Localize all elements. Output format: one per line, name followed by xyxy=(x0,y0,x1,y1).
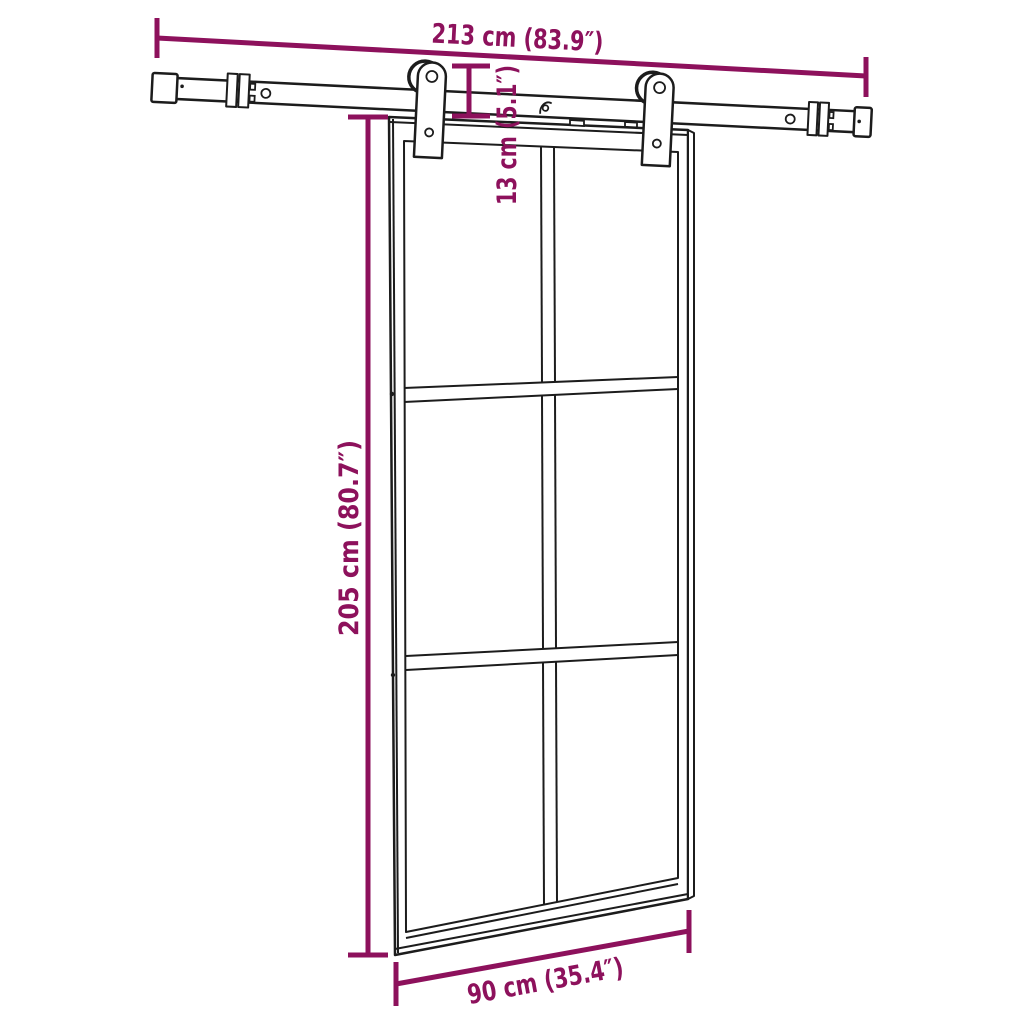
frame-screw xyxy=(390,392,394,396)
rail-mounting-hole xyxy=(261,89,270,98)
strap-bolt xyxy=(653,139,661,147)
rail-end-cap-right xyxy=(853,107,871,137)
rail-mounting-hole xyxy=(786,114,795,123)
dimension-door-height: 205 cm (80.7″) xyxy=(334,117,388,955)
frame-screw xyxy=(391,673,395,677)
door-width-label: 90 cm (35.4″) xyxy=(465,952,626,1011)
axle-bolt xyxy=(426,71,438,83)
sliding-door-diagram: 213 cm (83.9″) 13 cm (5.1″) 205 cm (80.7… xyxy=(0,0,1024,1024)
rail-end-cap-left xyxy=(151,73,177,103)
drop-label: 13 cm (5.1″) xyxy=(492,65,523,205)
door-outer-frame xyxy=(389,117,688,955)
anti-jump-block xyxy=(570,120,584,126)
axle-bolt xyxy=(654,82,666,94)
glass-sliding-door xyxy=(389,117,694,955)
product-dimension-diagram: 213 cm (83.9″) 13 cm (5.1″) 205 cm (80.7… xyxy=(0,0,1024,1024)
strap-bolt xyxy=(425,128,433,136)
anti-jump-block xyxy=(625,122,637,127)
door-height-label: 205 cm (80.7″) xyxy=(334,440,365,636)
door-side-edge xyxy=(688,130,694,899)
